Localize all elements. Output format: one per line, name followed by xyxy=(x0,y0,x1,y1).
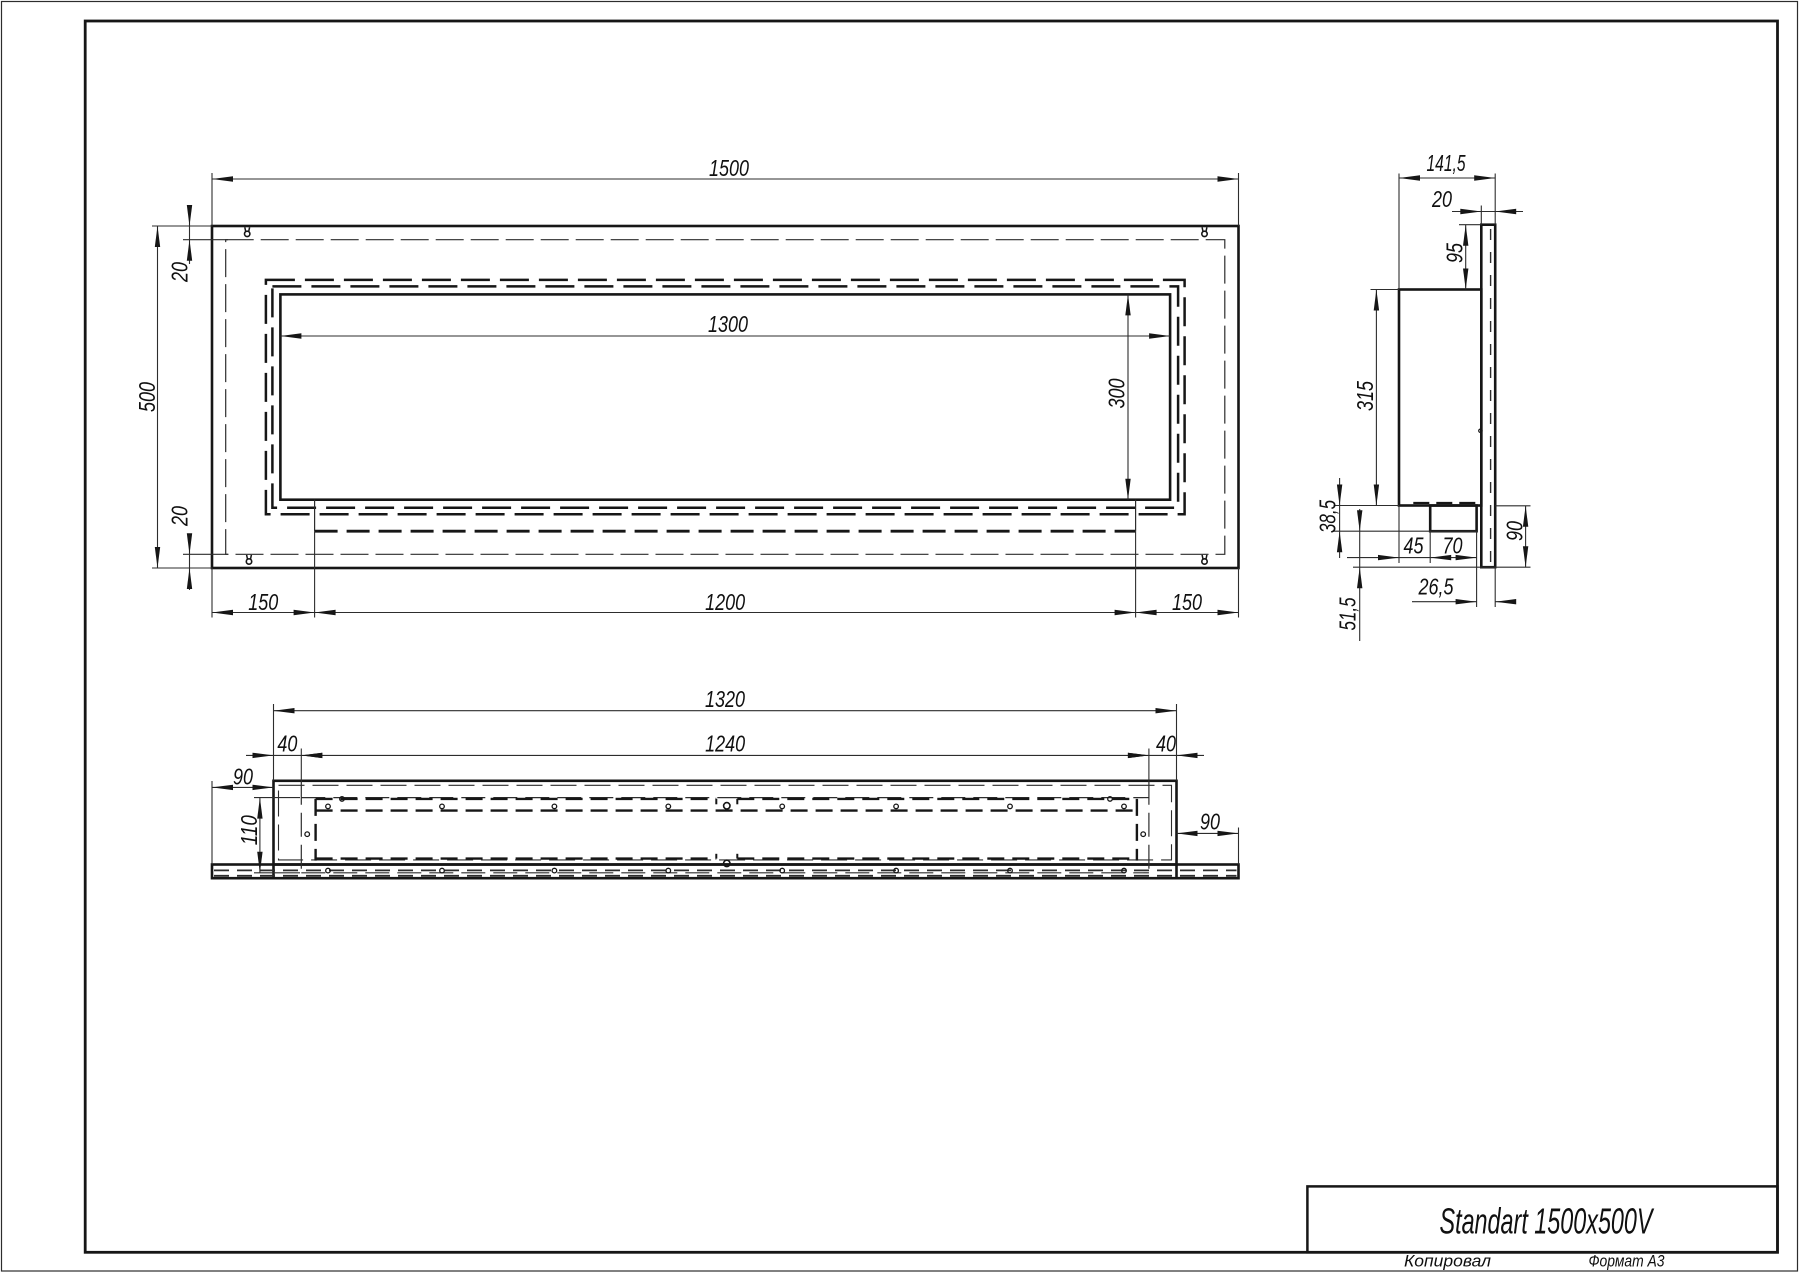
svg-text:70: 70 xyxy=(1443,533,1463,559)
svg-text:45: 45 xyxy=(1404,533,1424,559)
svg-text:90: 90 xyxy=(1200,809,1220,835)
svg-text:20: 20 xyxy=(167,262,193,283)
svg-text:40: 40 xyxy=(1156,731,1176,757)
svg-text:1500: 1500 xyxy=(709,155,749,181)
svg-text:500: 500 xyxy=(134,382,160,412)
svg-text:1300: 1300 xyxy=(708,311,748,337)
svg-text:51,5: 51,5 xyxy=(1335,597,1361,630)
svg-text:20: 20 xyxy=(167,506,193,527)
svg-text:90: 90 xyxy=(233,764,253,790)
svg-text:150: 150 xyxy=(248,589,278,615)
svg-text:300: 300 xyxy=(1104,378,1130,408)
svg-text:95: 95 xyxy=(1441,243,1467,263)
svg-text:150: 150 xyxy=(1172,589,1202,615)
svg-text:90: 90 xyxy=(1502,521,1528,541)
svg-text:1320: 1320 xyxy=(705,686,745,712)
svg-text:Standart 1500x500V: Standart 1500x500V xyxy=(1440,1201,1655,1242)
svg-text:141,5: 141,5 xyxy=(1427,150,1466,176)
svg-text:40: 40 xyxy=(277,731,297,757)
svg-text:110: 110 xyxy=(236,815,262,845)
svg-text:1240: 1240 xyxy=(705,731,745,757)
svg-text:26,5: 26,5 xyxy=(1418,574,1454,600)
svg-text:Формат А3: Формат А3 xyxy=(1589,1252,1665,1271)
svg-text:38,5: 38,5 xyxy=(1315,500,1341,533)
svg-text:1200: 1200 xyxy=(705,589,745,615)
svg-text:Копировал: Копировал xyxy=(1404,1252,1491,1271)
svg-text:315: 315 xyxy=(1352,381,1378,411)
svg-text:20: 20 xyxy=(1431,186,1452,212)
